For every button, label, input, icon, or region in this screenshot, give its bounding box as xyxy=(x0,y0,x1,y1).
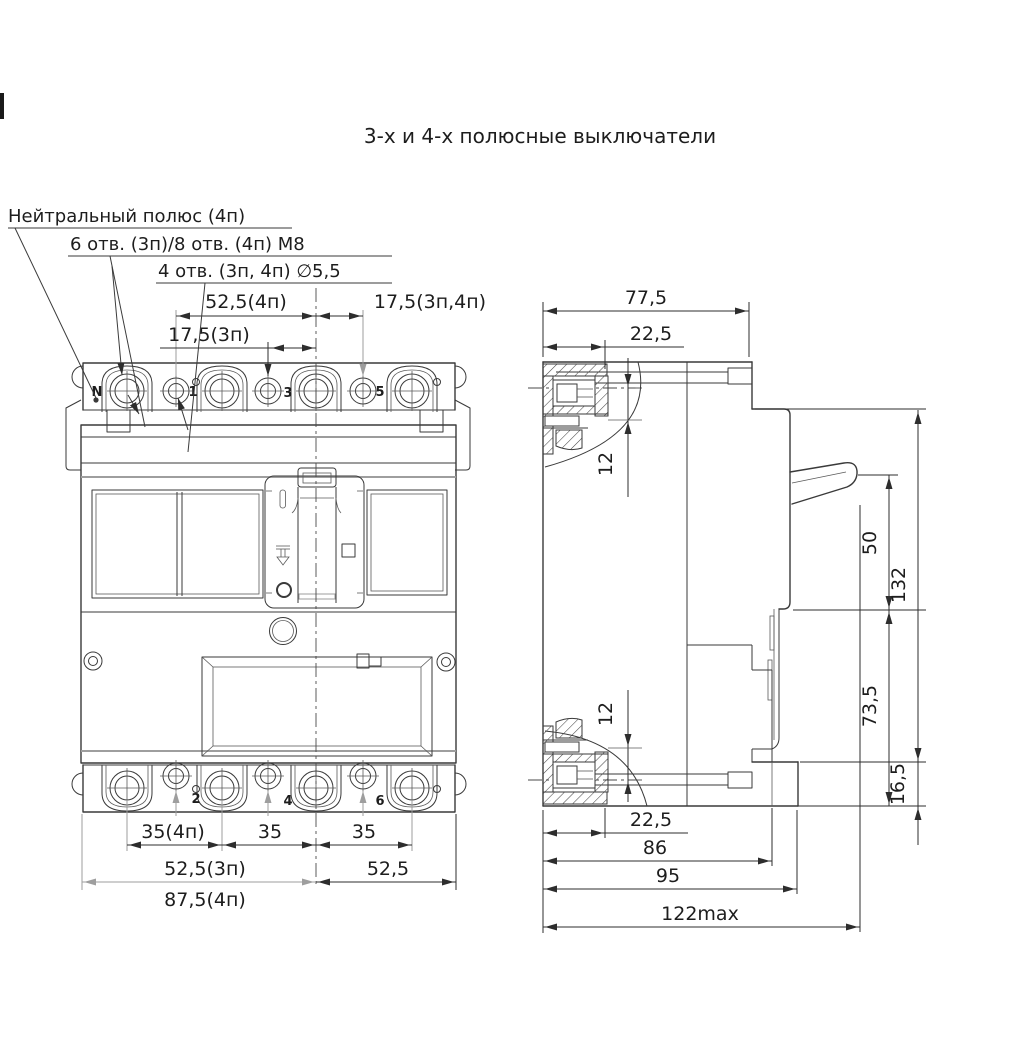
dim-foot-16: 16,5 xyxy=(887,763,909,805)
dim-offset-top: 12 xyxy=(595,452,617,476)
page-title: 3-х и 4-х полюсные выключатели xyxy=(364,124,716,148)
dim-offset-bottom: 12 xyxy=(595,702,617,726)
callout-holes-d55: 4 отв. (3п, 4п) ∅5,5 xyxy=(158,261,341,282)
terminal-arch xyxy=(197,366,247,412)
trip-test-icon xyxy=(276,546,290,565)
strip-notch-left xyxy=(72,773,83,795)
handle-escutcheon xyxy=(265,468,364,608)
dim-depth-86: 86 xyxy=(643,837,667,859)
dim-top-center-3p: 17,5(3п) xyxy=(168,324,250,346)
cover-clip xyxy=(768,660,772,700)
strip-notch-left xyxy=(72,366,83,388)
dim-height-132: 132 xyxy=(888,567,910,603)
pole-label-6: 6 xyxy=(375,794,384,809)
dim-half-width-right: 52,5 xyxy=(367,858,409,880)
front-view: N 1 3 5 xyxy=(8,206,486,911)
dim-top-right: 17,5(3п,4п) xyxy=(374,291,486,313)
side-view: 77,5 22,5 12 12 xyxy=(528,287,926,933)
pole-label-4: 4 xyxy=(283,794,292,809)
dim-terminal-depth-top: 22,5 xyxy=(630,323,672,345)
right-window xyxy=(367,490,447,595)
test-button xyxy=(270,618,297,645)
dim-half-width-3p: 52,5(3п) xyxy=(164,858,246,880)
side-outline xyxy=(528,362,857,806)
technical-drawing: 3-х и 4-х полюсные выключатели xyxy=(0,0,1036,1060)
dim-terminal-depth-bottom: 22,5 xyxy=(630,809,672,831)
dim-lower-73: 73,5 xyxy=(859,685,881,727)
front-body xyxy=(66,400,470,763)
din-foot xyxy=(752,749,798,806)
dim-half-width-4p: 87,5(4п) xyxy=(164,889,246,911)
clip-hook xyxy=(556,430,582,450)
dim-depth-95: 95 xyxy=(656,865,680,887)
leader-dot xyxy=(93,397,98,402)
dim-handle-50: 50 xyxy=(859,531,881,555)
toggle-handle xyxy=(292,468,341,603)
callout-neutral-pole: Нейтральный полюс (4п) xyxy=(8,206,245,227)
side-wing-left xyxy=(66,400,81,470)
side-handle xyxy=(790,463,857,504)
mount-hole xyxy=(160,375,192,407)
cover-clip xyxy=(770,616,774,650)
dim-pitch-4p: 35(4п) xyxy=(141,821,205,843)
mount-tab-left xyxy=(107,410,130,432)
strip-notch-right xyxy=(455,366,466,388)
dim-depth-max: 122max xyxy=(661,903,739,925)
section-cut-top xyxy=(543,362,641,467)
pole-label-2: 2 xyxy=(191,792,200,807)
strip-notch-right xyxy=(455,773,466,795)
mount-hole xyxy=(252,375,284,407)
front-terminals-bottom: 2 4 6 xyxy=(102,760,441,811)
callout-holes-m8: 6 отв. (3п)/8 отв. (4п) М8 xyxy=(70,234,305,255)
section-cut-bottom xyxy=(543,718,647,806)
cover-screw-left xyxy=(84,652,102,670)
window-square xyxy=(342,544,355,557)
clip-hook xyxy=(556,718,582,738)
pole-label-5: 5 xyxy=(375,385,384,400)
drawing-canvas: 3-х и 4-х полюсные выключатели xyxy=(0,0,1036,1060)
nameplate-clip xyxy=(357,654,369,668)
dim-pitch-right: 35 xyxy=(352,821,376,843)
side-wing-right xyxy=(455,400,470,470)
terminal-arch xyxy=(102,366,152,412)
mount-tab-right xyxy=(420,410,443,432)
mount-hole xyxy=(347,375,379,407)
left-window xyxy=(92,490,263,598)
front-terminals-top: N 1 3 5 xyxy=(92,366,441,412)
dim-depth-77: 77,5 xyxy=(625,287,667,309)
pole-label-3: 3 xyxy=(283,386,292,401)
terminal-arch xyxy=(387,366,437,412)
scan-artifact xyxy=(0,93,4,119)
dim-pitch-mid: 35 xyxy=(258,821,282,843)
cover-screw-right xyxy=(437,653,455,671)
reset-mark xyxy=(277,583,291,597)
nameplate xyxy=(202,654,432,756)
on-position-mark xyxy=(280,490,286,508)
dim-top-center-4p: 52,5(4п) xyxy=(205,291,287,313)
front-top-strip xyxy=(72,363,466,432)
